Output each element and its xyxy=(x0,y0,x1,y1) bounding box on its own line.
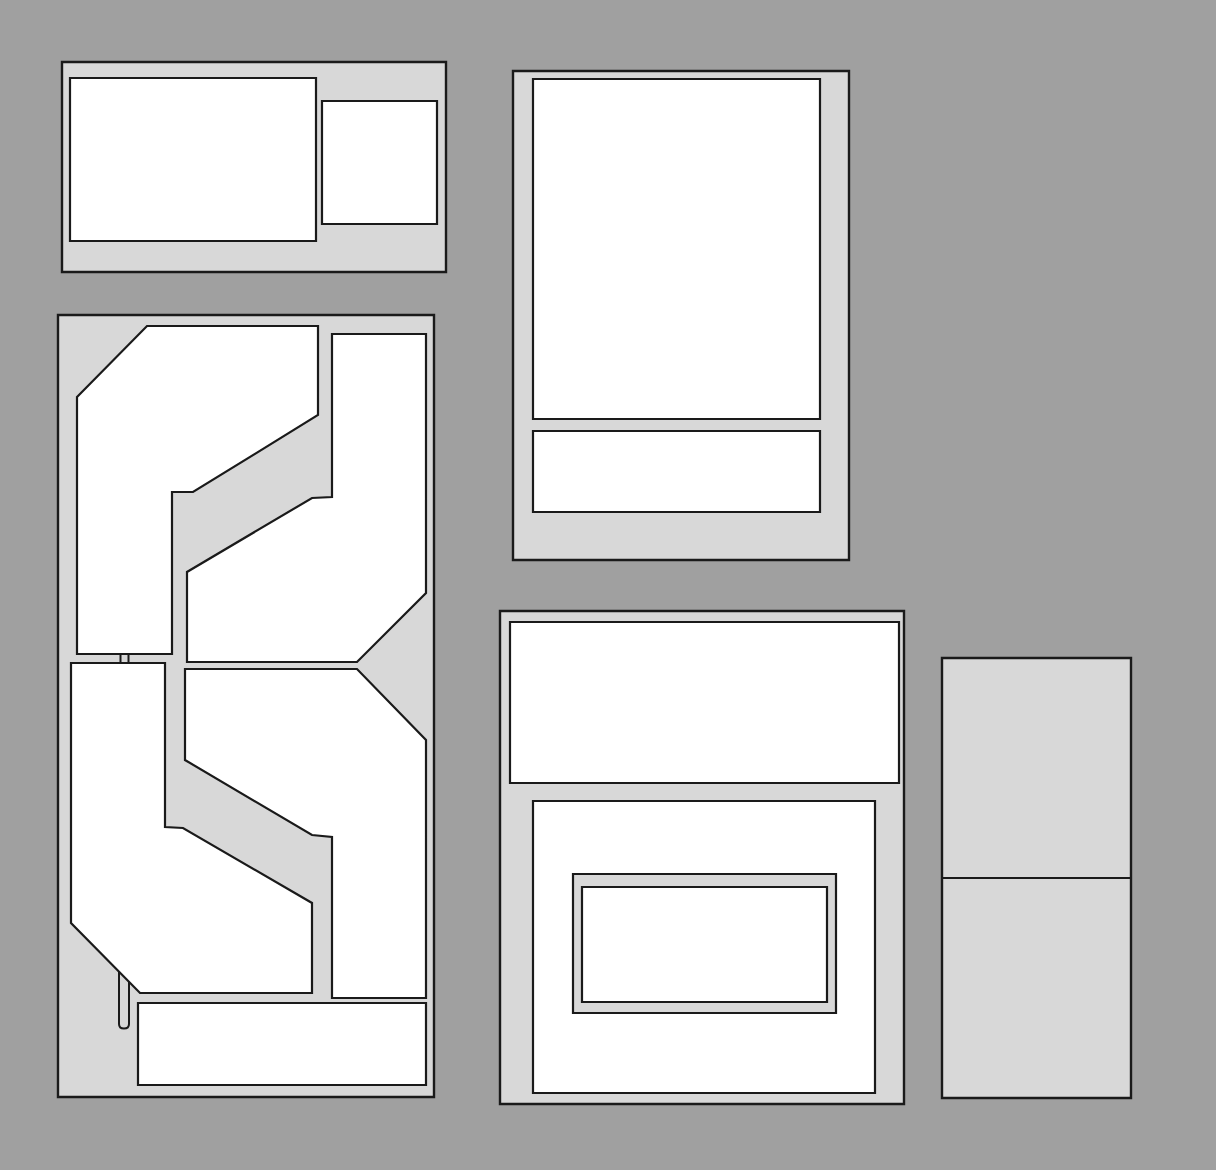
panel-top-center xyxy=(513,71,849,560)
panel-floor-plan xyxy=(58,315,434,1097)
diagram-canvas xyxy=(0,0,1216,1170)
panel-right xyxy=(942,658,1131,1098)
top-center-strip-rect xyxy=(533,431,820,512)
panel-top-left xyxy=(62,62,446,272)
top-center-large-rect xyxy=(533,79,820,419)
top-left-small-rect xyxy=(322,101,437,224)
top-left-large-rect xyxy=(70,78,316,241)
bottom-center-top-rect xyxy=(510,622,899,783)
floor-plan-bottom-rect xyxy=(138,1003,426,1085)
nested-inner-rect xyxy=(582,887,827,1002)
floor-plan-svg xyxy=(0,0,1216,1170)
panel-bottom-center xyxy=(500,611,904,1104)
